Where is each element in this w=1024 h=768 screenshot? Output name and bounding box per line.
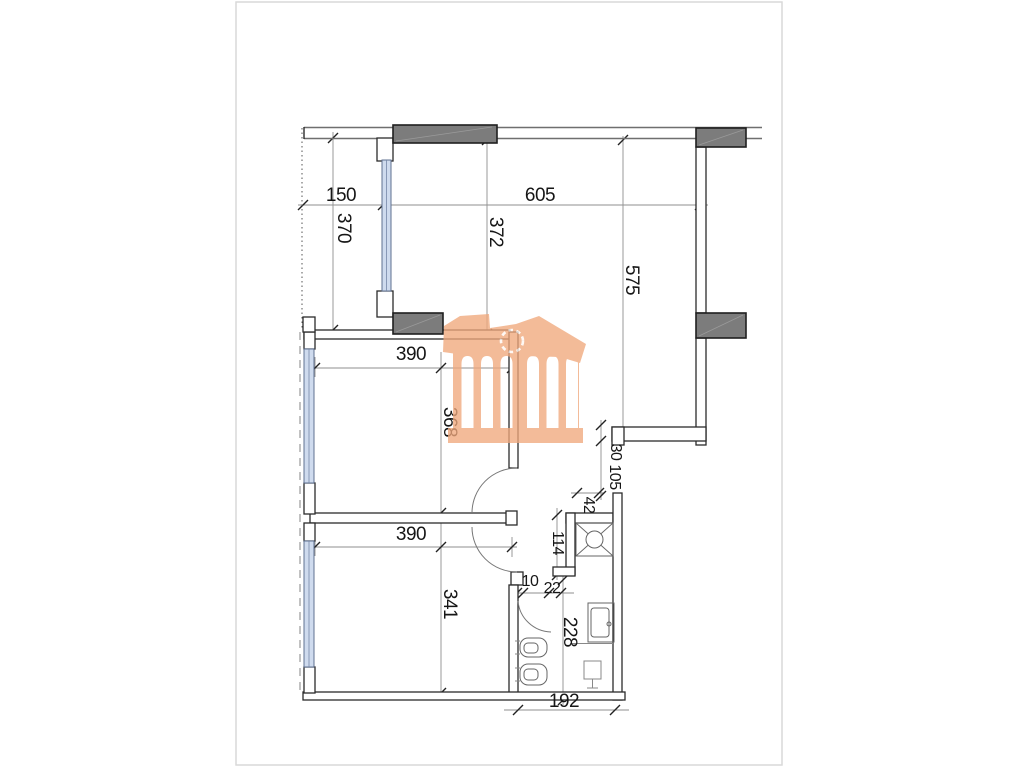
dim-228: 228 (559, 617, 580, 647)
dim-150: 150 (326, 185, 356, 206)
dim-341: 341 (439, 589, 460, 619)
dim-390-bottom: 390 (396, 524, 426, 545)
dim-192: 192 (549, 691, 579, 712)
floorplan-page: 150 605 370 372 575 390 368 30 105 42 11… (0, 0, 1024, 768)
dim-30: 30 (607, 444, 624, 461)
dim-105: 105 (606, 464, 623, 490)
dim-42: 42 (580, 497, 597, 514)
dim-372: 372 (485, 217, 506, 247)
dim-575: 575 (621, 265, 642, 295)
dim-22: 22 (544, 580, 561, 597)
dim-605: 605 (525, 185, 555, 206)
dim-114: 114 (549, 531, 566, 556)
floorplan-drawing: 150 605 370 372 575 390 368 30 105 42 11… (0, 0, 1024, 768)
dim-370: 370 (333, 213, 354, 243)
dim-390-top: 390 (396, 344, 426, 365)
dim-10: 10 (522, 573, 539, 590)
